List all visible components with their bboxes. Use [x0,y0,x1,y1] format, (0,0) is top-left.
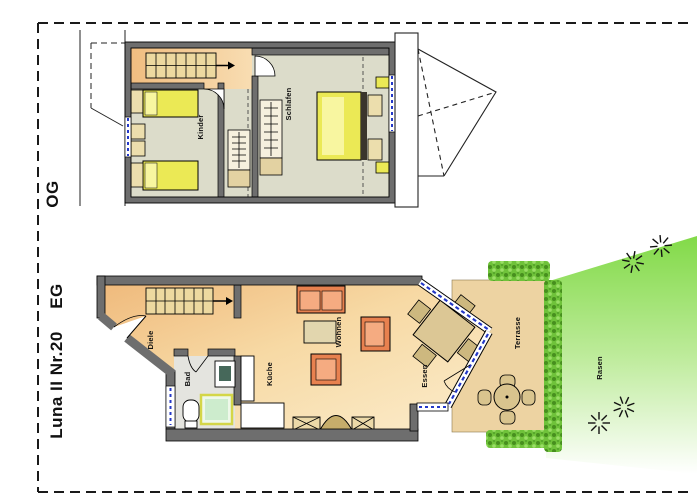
window [389,75,395,132]
garden [452,236,697,474]
roof-gable [395,33,496,207]
window [125,117,131,157]
nightstand [131,163,143,187]
bed-single [143,161,198,190]
bed-single [143,90,198,117]
coffee-table [304,321,336,343]
armchair [311,354,341,385]
og-aux-lines [80,30,128,206]
room-label-wohnen: Wohnen [334,316,343,347]
room-label-terrasse: Terrasse [513,317,522,349]
room-label-kinder: Kinder [196,115,205,140]
chair [478,390,491,405]
room-label-essen: Essen [420,364,429,387]
nightstand [131,90,143,113]
chair [522,390,535,405]
shelf [131,141,145,156]
nightstand [368,95,382,116]
sofa [297,286,345,313]
og-floor-label: OG [43,180,62,207]
hedge-top [488,261,550,281]
hedge-right [544,280,562,452]
shelf [131,124,145,139]
toilet-icon [183,400,199,428]
bed-double [317,92,367,160]
window [166,386,175,427]
fireplace [293,416,374,431]
og-floorplan: Kinder Schlafen OG [43,30,496,208]
shelf [376,77,389,88]
floor-plan-svg: Kinder Schlafen OG [0,0,700,500]
lawn [546,236,697,474]
wardrobe [260,100,282,175]
eg-floor-label: EG [47,283,66,309]
armchair [361,317,390,351]
window [417,403,448,411]
room-label-bad: Bad [183,371,192,386]
chair [500,411,515,424]
eg-floorplan: Diele Bad Küche Wohnen Essen Luna II Nr.… [47,276,499,441]
hedge-bottom [486,430,550,448]
bathtub-icon [201,395,232,424]
headboard [361,92,367,160]
floor-plan-drawing: Kinder Schlafen OG [0,0,700,500]
room-label-kueche: Küche [265,362,274,386]
project-title: Luna II Nr.20 [47,331,66,439]
wardrobe [228,130,250,187]
nightstand [368,139,382,160]
shelf [376,162,389,173]
room-label-rasen: Rasen [595,356,604,380]
washbasin-icon [215,361,235,387]
room-label-schlafen: Schlafen [284,87,293,120]
room-label-diele: Diele [146,331,155,350]
